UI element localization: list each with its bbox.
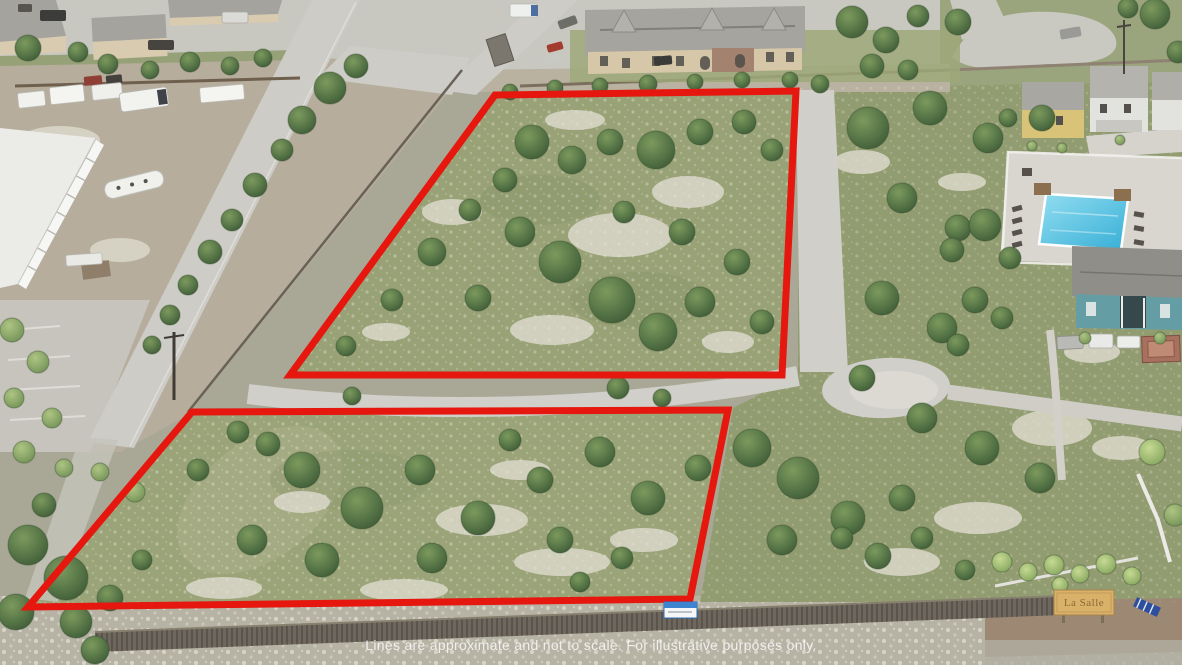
aerial-photo-canvas: La Salle Lines are approximate and not t… xyxy=(0,0,1182,665)
disclaimer-text: Lines are approximate and not to scale. … xyxy=(365,637,816,653)
access-drive xyxy=(248,376,798,407)
aerial-photo: La Salle Lines are approximate and not t… xyxy=(0,0,1182,665)
la-salle-sign-label: La Salle xyxy=(1064,597,1104,609)
fence-sign xyxy=(664,602,697,618)
